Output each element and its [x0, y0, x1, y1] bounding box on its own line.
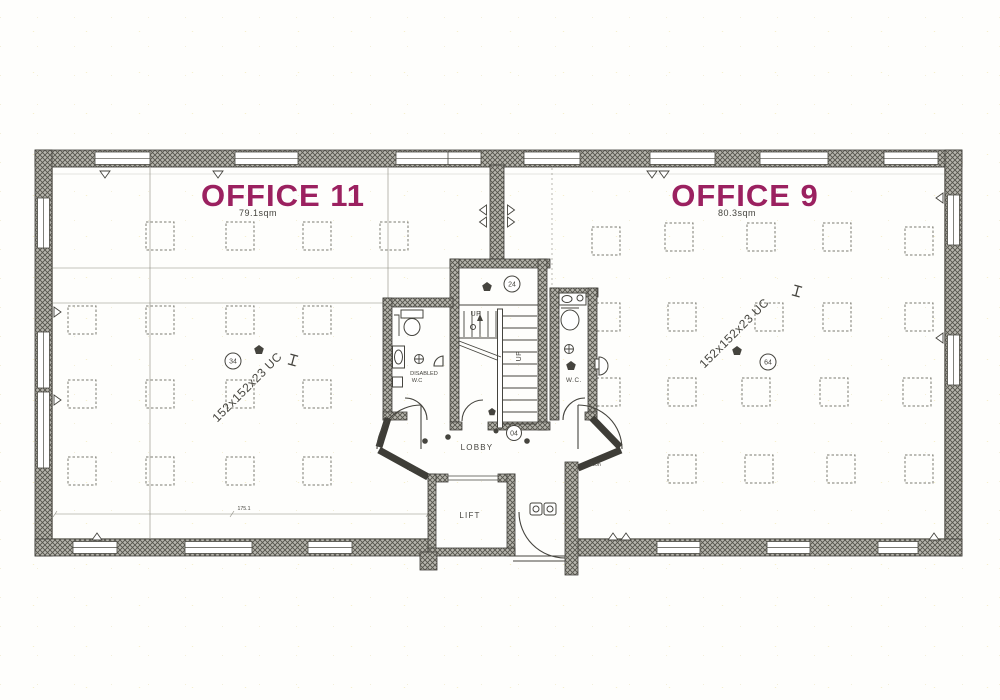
ceiling-tile [68, 380, 96, 408]
lift-label: LIFT [459, 511, 480, 520]
ceiling-tile [905, 227, 933, 255]
radiator-icon [621, 533, 631, 540]
ceiling-tile [68, 306, 96, 334]
stair-door-swing [462, 400, 483, 421]
radiator-icon [480, 217, 487, 227]
ceiling-tile [747, 223, 775, 251]
wc-toilet-icon [561, 308, 579, 330]
floor-plan: 34 64 24 04 OFFICE 11 79.1sqm OFFICE 9 8… [0, 0, 1000, 700]
dot-marker-icon [445, 434, 451, 440]
ceiling-tile [303, 306, 331, 334]
wc-basin-icon [559, 293, 586, 305]
ceiling-tile [303, 457, 331, 485]
ceiling-tile [226, 306, 254, 334]
ceiling-tile [68, 457, 96, 485]
radiator-icon [213, 171, 223, 178]
ceiling-tile [668, 455, 696, 483]
disabled-wc-label: DISABLED [410, 371, 438, 377]
office11-beam-note: 152x152x23 UC [209, 349, 284, 424]
ceiling-tile [823, 223, 851, 251]
ceiling-tile [745, 455, 773, 483]
cross-circle-icon [415, 355, 424, 364]
column-marker-icon [566, 361, 576, 370]
radiator-icon [54, 395, 61, 405]
disabled-wc-door-swing [405, 398, 427, 420]
ceiling-tile [903, 378, 931, 406]
radiator-icon [508, 205, 515, 215]
radiator-icon [647, 171, 657, 178]
radiator-icon [936, 333, 943, 343]
radiator-icon [480, 205, 487, 215]
ceiling-tile [742, 378, 770, 406]
wc-door-swing [563, 398, 585, 420]
left-door-head-dim: 400h [407, 467, 419, 473]
ceiling-tile [380, 222, 408, 250]
dot-marker-icon [494, 429, 499, 434]
disabled-wc-toilet-icon [394, 310, 423, 336]
column-marker-icon [482, 282, 492, 291]
beam-section-icon [792, 285, 802, 297]
ceiling-tile [668, 303, 696, 331]
lobby-ref: 04 [510, 431, 518, 438]
wc-label: W.C. [566, 377, 582, 384]
ceiling-tile [668, 378, 696, 406]
radiator-icon [659, 171, 669, 178]
stair-up-label: UP [471, 311, 482, 318]
ceiling-tile [827, 455, 855, 483]
disabled-wc-label: W.C [412, 378, 423, 384]
labels: OFFICE 11 79.1sqm OFFICE 9 80.3sqm 152x1… [201, 178, 819, 520]
ceiling-tile [905, 303, 933, 331]
stair-ref: 24 [508, 282, 516, 289]
ceiling-tile [592, 227, 620, 255]
dot-marker-icon [524, 438, 530, 444]
ceiling-tile [823, 303, 851, 331]
entrance-door-swing [519, 512, 565, 558]
column-marker-icon [488, 408, 496, 415]
ceiling-tile [905, 455, 933, 483]
radiator-icon [92, 533, 102, 540]
office11-area: 79.1sqm [239, 208, 277, 218]
radiator-icon [929, 533, 939, 540]
ceiling-tile [303, 222, 331, 250]
bottom-dimension: 175.1 [238, 506, 251, 512]
cross-circle-icon [565, 345, 574, 354]
beam-section-icon [288, 354, 298, 366]
lobby-label: LOBBY [461, 443, 494, 452]
door-symbol-icon [434, 356, 443, 366]
ceiling-tile [665, 223, 693, 251]
radiator-icon [54, 307, 61, 317]
ceiling-tile [226, 457, 254, 485]
ceiling-tile [226, 222, 254, 250]
disabled-wc-basin-icon [393, 346, 405, 387]
office11-ref: 34 [229, 359, 237, 366]
dot-marker-icon [422, 438, 428, 444]
entrance-meter-boxes [530, 503, 556, 515]
office9-ref: 64 [764, 360, 772, 367]
wall-entrance-side [565, 462, 578, 575]
radiator-icon [608, 533, 618, 540]
wall-office-divider [490, 165, 504, 261]
staircase [459, 305, 538, 428]
column-marker-icon [254, 345, 264, 354]
office9-area: 80.3sqm [718, 208, 756, 218]
radiator-icon [936, 193, 943, 203]
stair-up-label: UP [516, 351, 523, 362]
radiator-icon [508, 217, 515, 227]
office11-title: OFFICE 11 [201, 178, 365, 213]
ceiling-tile [820, 378, 848, 406]
ceiling-tile [303, 380, 331, 408]
radiator-icon [100, 171, 110, 178]
column-marker-icon [732, 346, 742, 355]
symbols [254, 282, 802, 444]
right-door-head-dim: 400h [589, 462, 601, 468]
